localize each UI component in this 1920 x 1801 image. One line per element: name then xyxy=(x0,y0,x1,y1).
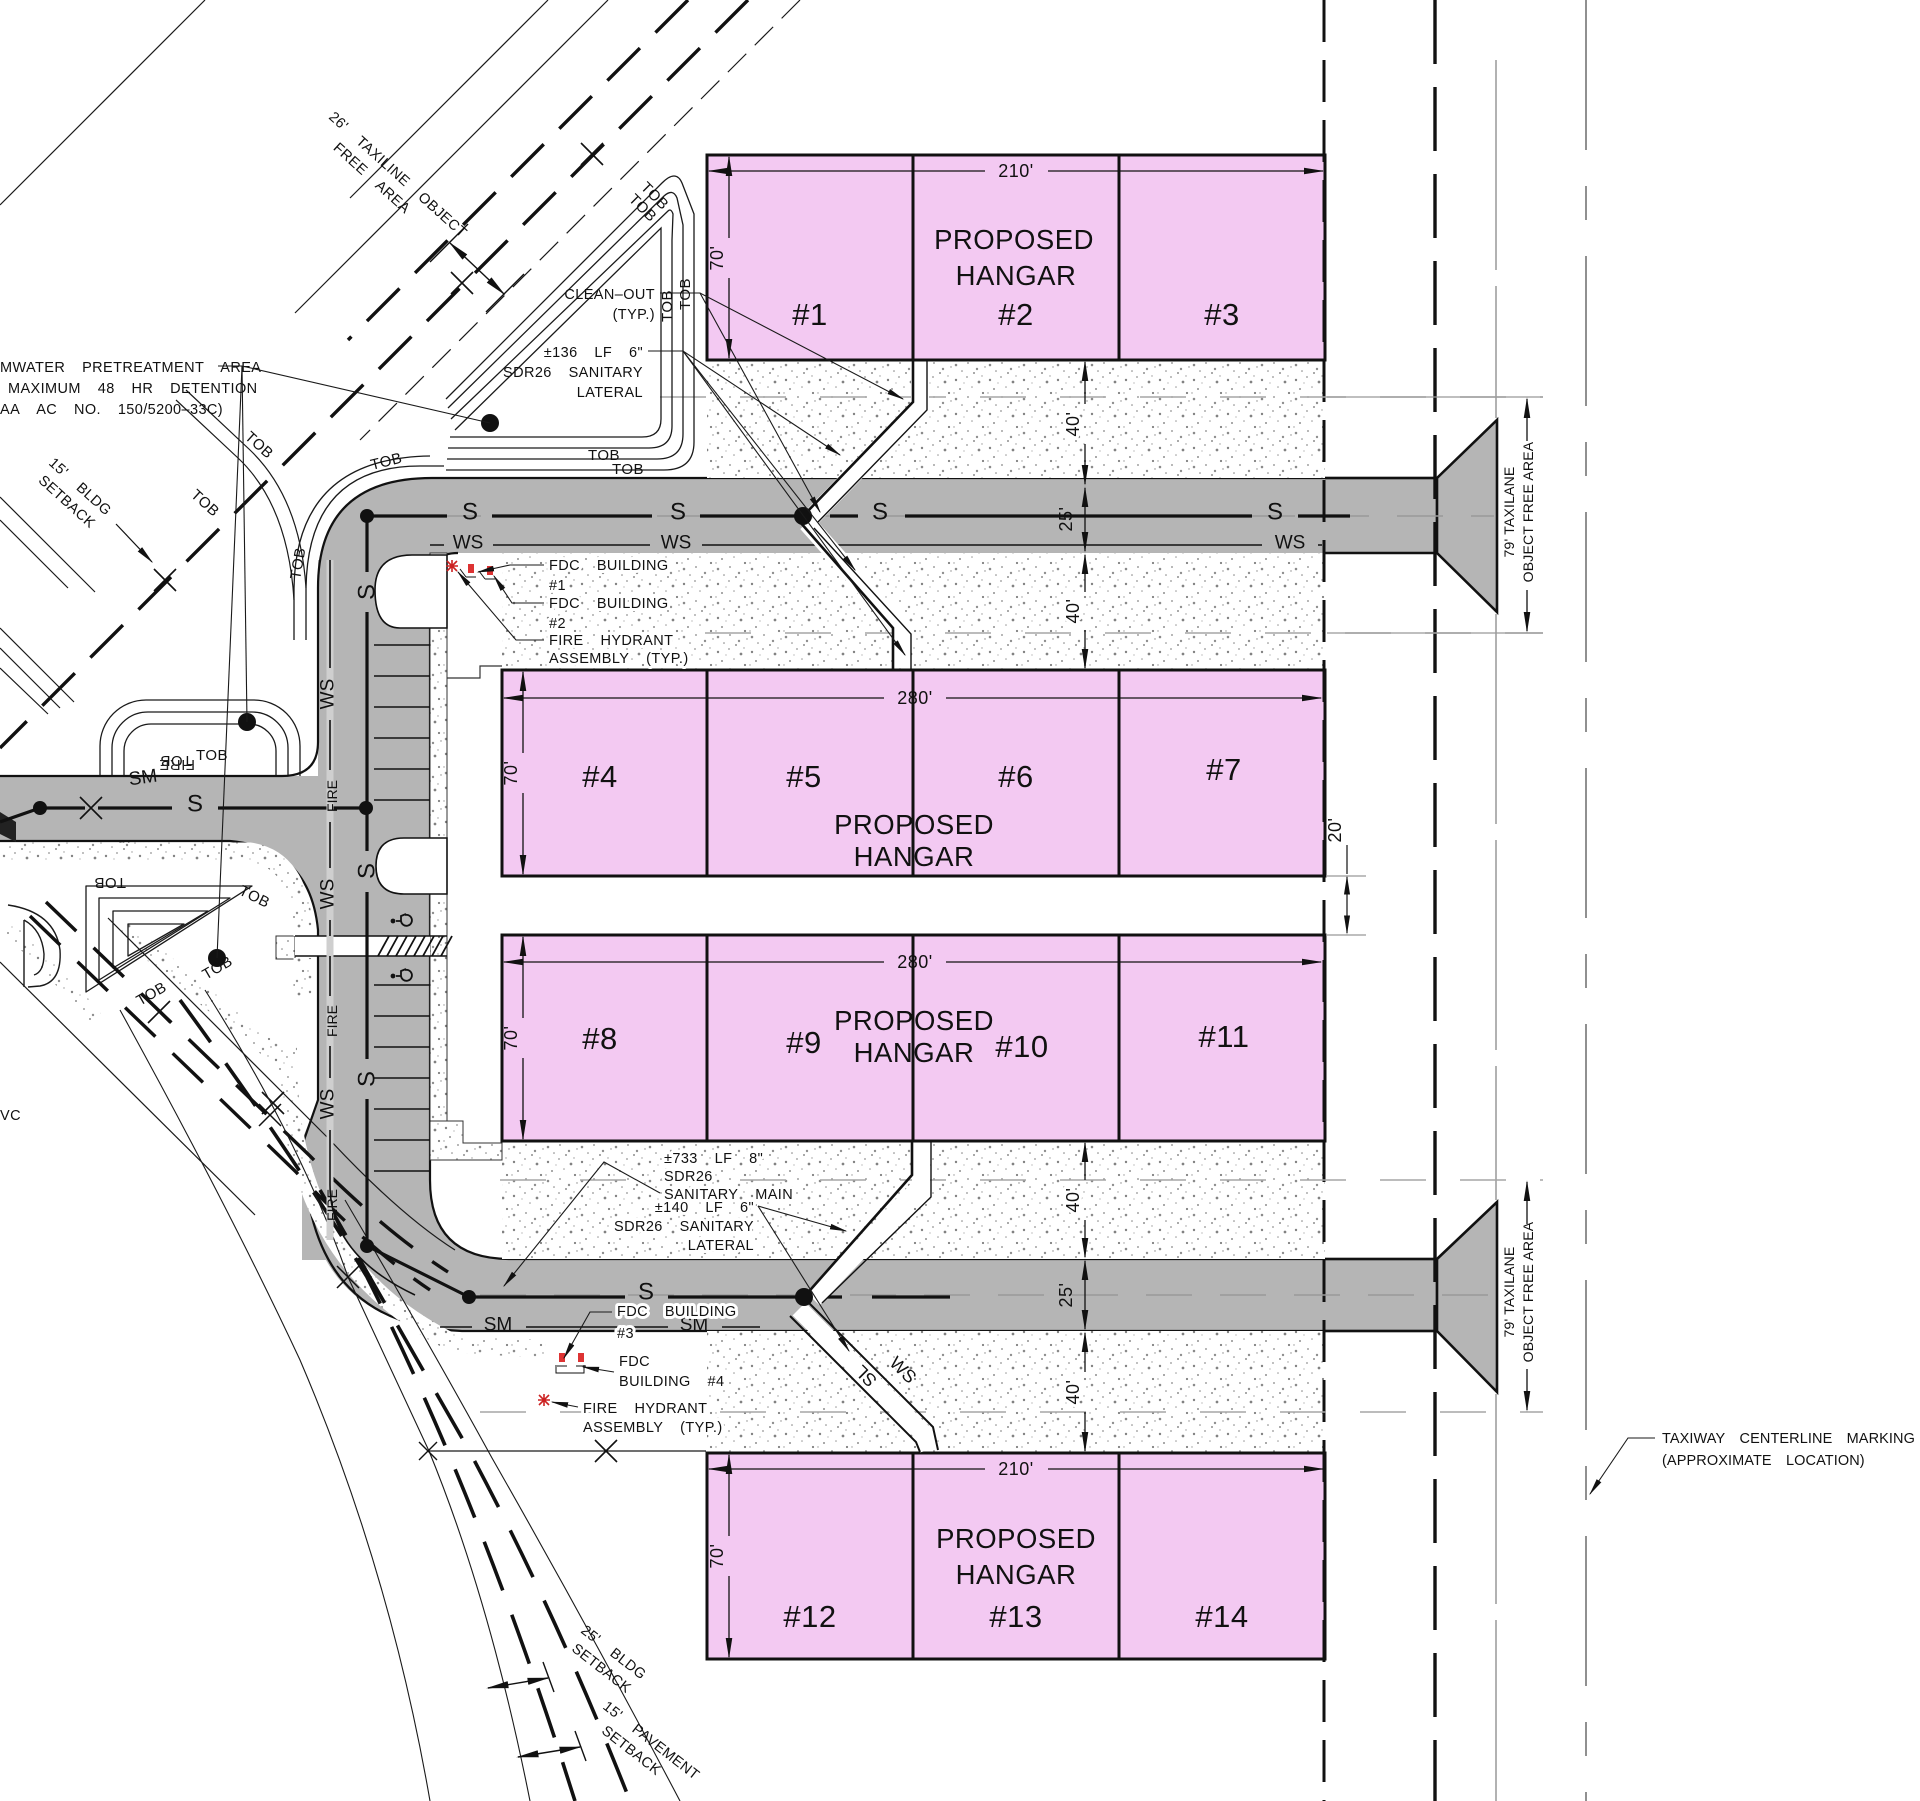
svg-text:FDC: FDC xyxy=(619,1354,650,1370)
svg-text:S: S xyxy=(872,499,888,526)
svg-text:#13: #13 xyxy=(989,1599,1042,1634)
svg-text:PROPOSED: PROPOSED xyxy=(936,1523,1096,1554)
svg-text:79' TAXILANE: 79' TAXILANE xyxy=(1501,1247,1517,1338)
svg-text:FIRE HYDRANT: FIRE HYDRANT xyxy=(549,633,673,649)
svg-text:#6: #6 xyxy=(998,759,1033,794)
svg-text:#3: #3 xyxy=(1204,297,1239,332)
svg-text:S: S xyxy=(638,1279,654,1306)
svg-text:PROPOSED: PROPOSED xyxy=(834,1005,994,1036)
svg-text:FIRE HYDRANT: FIRE HYDRANT xyxy=(583,1401,707,1417)
svg-text:ASSEMBLY (TYP.): ASSEMBLY (TYP.) xyxy=(583,1420,723,1436)
svg-text:79' TAXILANE: 79' TAXILANE xyxy=(1501,467,1517,558)
svg-text:#10: #10 xyxy=(995,1029,1048,1064)
svg-text:LATERAL: LATERAL xyxy=(688,1238,754,1254)
svg-text:±136 LF 6": ±136 LF 6" xyxy=(544,345,643,361)
svg-text:TOB: TOB xyxy=(94,874,126,891)
svg-text:70': 70' xyxy=(707,1544,727,1569)
svg-text:TOB: TOB xyxy=(677,278,694,310)
svg-text:#11: #11 xyxy=(1199,1019,1250,1054)
svg-text:25': 25' xyxy=(1056,1283,1076,1308)
svg-text:(TYP.): (TYP.) xyxy=(613,307,655,323)
svg-text:PROPOSED: PROPOSED xyxy=(834,809,994,840)
svg-text:280': 280' xyxy=(897,952,932,972)
svg-text:WS: WS xyxy=(318,679,339,710)
svg-text:FIRE: FIRE xyxy=(324,780,340,812)
svg-text:VC: VC xyxy=(0,1108,21,1124)
svg-text:WS: WS xyxy=(453,533,484,554)
svg-text:LATERAL: LATERAL xyxy=(577,385,643,401)
svg-text:S: S xyxy=(462,499,478,526)
svg-text:#1: #1 xyxy=(549,578,566,594)
svg-text:MWATER PRETREATMENT AREA: MWATER PRETREATMENT AREA xyxy=(0,360,261,376)
svg-text:BUILDING #4: BUILDING #4 xyxy=(619,1374,724,1390)
svg-text:70': 70' xyxy=(707,246,727,271)
svg-text:#12: #12 xyxy=(783,1599,836,1634)
svg-text:#9: #9 xyxy=(786,1025,821,1060)
svg-text:FIRE: FIRE xyxy=(324,1189,340,1221)
svg-text:#2: #2 xyxy=(998,297,1033,332)
svg-text:WS: WS xyxy=(318,879,339,910)
svg-text:S: S xyxy=(187,791,203,818)
svg-text:S: S xyxy=(354,863,381,879)
svg-text:AA AC NO. 150/5200–33C): AA AC NO. 150/5200–33C) xyxy=(0,402,223,418)
svg-text:FIRE: FIRE xyxy=(324,1005,340,1037)
svg-text:OBJECT FREE AREA: OBJECT FREE AREA xyxy=(1520,441,1536,582)
svg-text:TOB: TOB xyxy=(196,747,228,764)
svg-text:40': 40' xyxy=(1063,1188,1083,1213)
svg-text:±733 LF 8": ±733 LF 8" xyxy=(664,1151,763,1167)
svg-text:TAXIWAY CENTERLINE MARKING: TAXIWAY CENTERLINE MARKING xyxy=(1662,1431,1915,1447)
svg-text:PROPOSED: PROPOSED xyxy=(934,224,1094,255)
svg-text:HANGAR: HANGAR xyxy=(956,260,1077,291)
svg-text:CLEAN–OUT: CLEAN–OUT xyxy=(564,287,655,303)
svg-text:#8: #8 xyxy=(582,1021,617,1056)
svg-text:HANGAR: HANGAR xyxy=(854,1037,975,1068)
svg-text:WS: WS xyxy=(661,533,692,554)
svg-text:280': 280' xyxy=(897,688,932,708)
svg-text:#5: #5 xyxy=(786,759,821,794)
svg-text:210': 210' xyxy=(998,161,1033,181)
svg-text:OBJECT FREE AREA: OBJECT FREE AREA xyxy=(1520,1221,1536,1362)
svg-text:SM: SM xyxy=(484,1315,513,1336)
svg-text:SDR26 SANITARY: SDR26 SANITARY xyxy=(614,1219,754,1235)
svg-text:FIRE: FIRE xyxy=(159,756,195,773)
svg-text:FDC BUILDING: FDC BUILDING xyxy=(549,596,669,612)
svg-text:WS: WS xyxy=(318,1089,339,1120)
svg-text:WS: WS xyxy=(1275,533,1306,554)
svg-text:HANGAR: HANGAR xyxy=(956,1559,1077,1590)
svg-text:FDC BUILDING: FDC BUILDING xyxy=(617,1304,737,1320)
svg-text:S: S xyxy=(670,499,686,526)
svg-text:(APPROXIMATE LOCATION): (APPROXIMATE LOCATION) xyxy=(1662,1453,1865,1469)
svg-text:MAXIMUM 48 HR DETENTION: MAXIMUM 48 HR DETENTION xyxy=(8,381,258,397)
svg-text:70': 70' xyxy=(501,1026,521,1051)
svg-text:TOB: TOB xyxy=(612,461,644,478)
svg-text:20': 20' xyxy=(1325,818,1345,843)
svg-text:S: S xyxy=(354,584,381,600)
svg-text:ASSEMBLY (TYP.): ASSEMBLY (TYP.) xyxy=(549,651,689,667)
svg-text:TOB: TOB xyxy=(659,290,676,322)
svg-text:S: S xyxy=(1267,499,1283,526)
svg-text:#1: #1 xyxy=(792,297,827,332)
svg-text:SDR26 SANITARY: SDR26 SANITARY xyxy=(503,365,643,381)
svg-text:HANGAR: HANGAR xyxy=(854,841,975,872)
svg-text:SDR26: SDR26 xyxy=(664,1169,713,1185)
svg-text:SM: SM xyxy=(127,766,158,791)
svg-text:#7: #7 xyxy=(1206,752,1241,787)
svg-text:#3: #3 xyxy=(617,1326,634,1342)
svg-text:FDC BUILDING: FDC BUILDING xyxy=(549,558,669,574)
svg-text:25': 25' xyxy=(1056,507,1076,532)
svg-text:#14: #14 xyxy=(1195,1599,1248,1634)
svg-text:40': 40' xyxy=(1063,1380,1083,1405)
svg-text:40': 40' xyxy=(1063,412,1083,437)
svg-text:#4: #4 xyxy=(582,759,617,794)
svg-text:#2: #2 xyxy=(549,616,566,632)
svg-text:210': 210' xyxy=(998,1459,1033,1479)
svg-text:±140 LF 6": ±140 LF 6" xyxy=(655,1200,754,1216)
svg-text:40': 40' xyxy=(1063,599,1083,624)
svg-text:S: S xyxy=(354,1071,381,1087)
svg-text:70': 70' xyxy=(501,761,521,786)
